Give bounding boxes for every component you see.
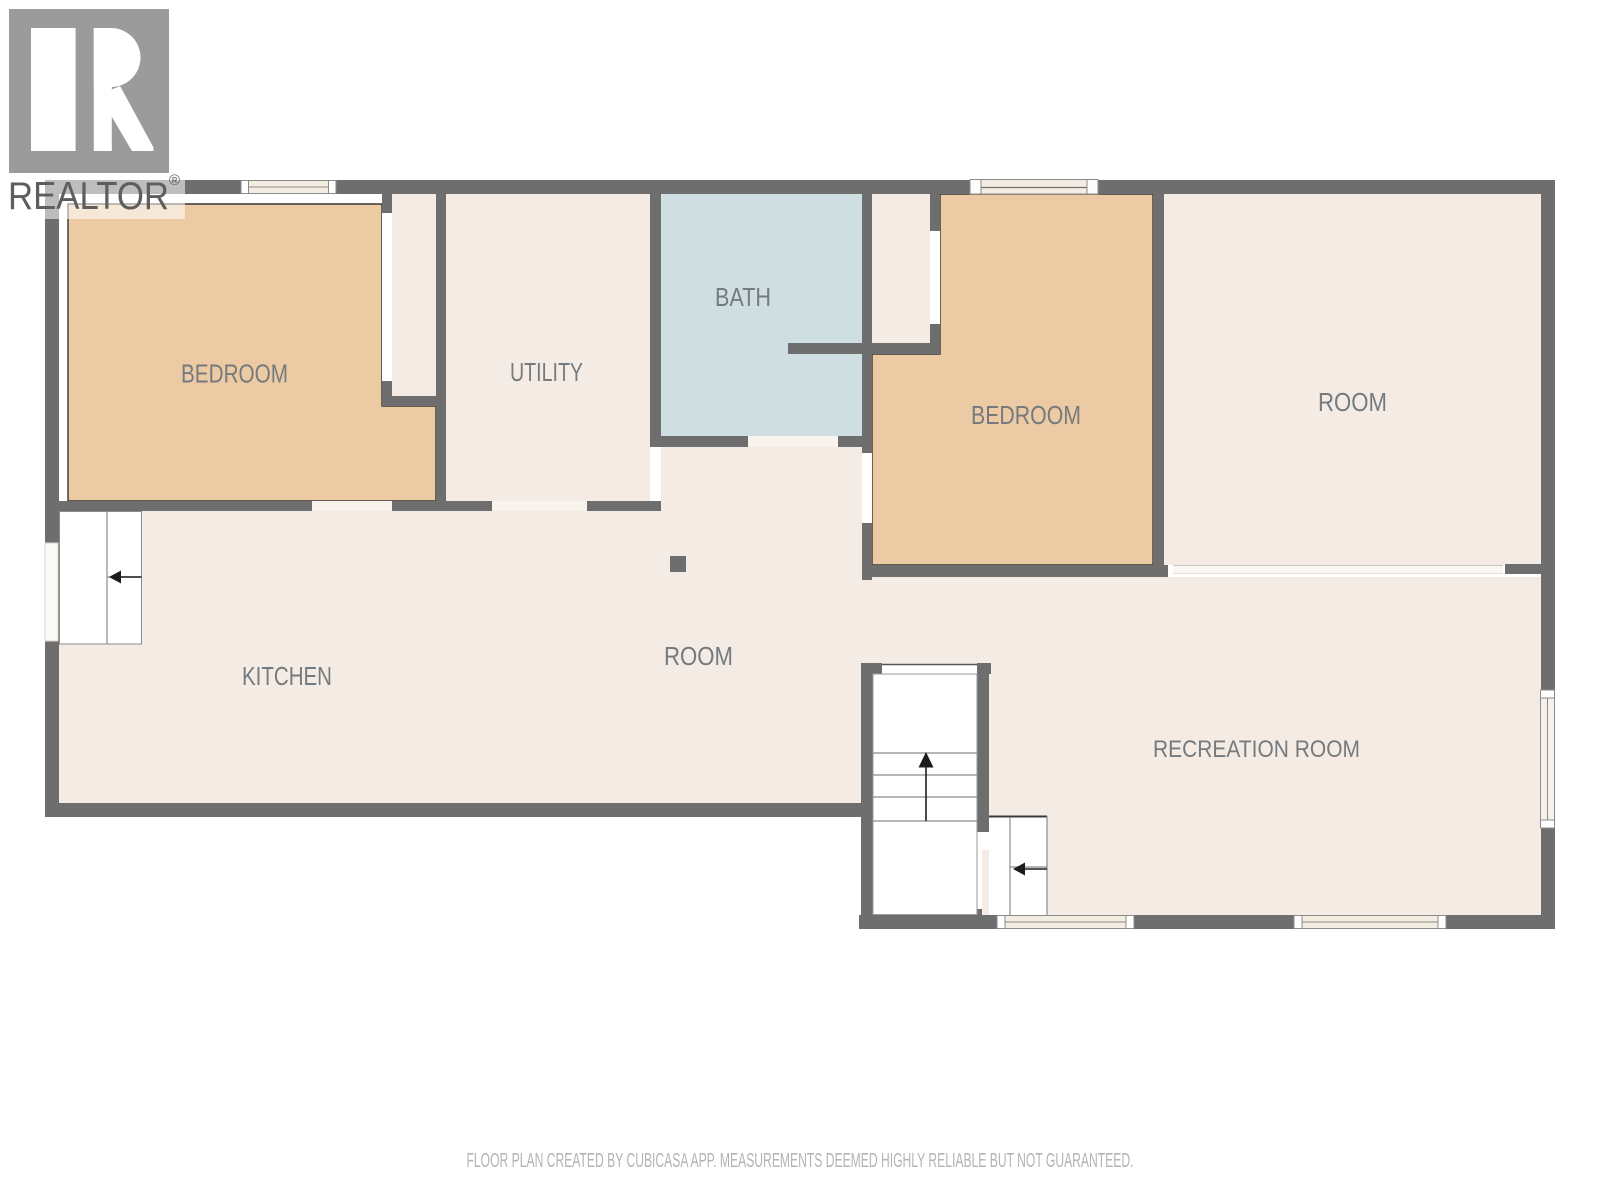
svg-text:BEDROOM: BEDROOM [971,400,1081,430]
svg-text:BATH: BATH [715,282,771,312]
svg-text:BEDROOM: BEDROOM [181,359,288,389]
svg-text:KITCHEN: KITCHEN [242,661,332,691]
svg-text:REALTOR: REALTOR [8,175,169,218]
svg-text:®: ® [169,172,180,189]
svg-text:ROOM: ROOM [1318,387,1387,417]
svg-text:ROOM: ROOM [664,641,733,671]
svg-text:RECREATION ROOM: RECREATION ROOM [1153,736,1360,763]
svg-text:FLOOR PLAN CREATED BY CUBICASA: FLOOR PLAN CREATED BY CUBICASA APP. MEAS… [467,1150,1134,1172]
svg-text:UTILITY: UTILITY [510,357,583,387]
